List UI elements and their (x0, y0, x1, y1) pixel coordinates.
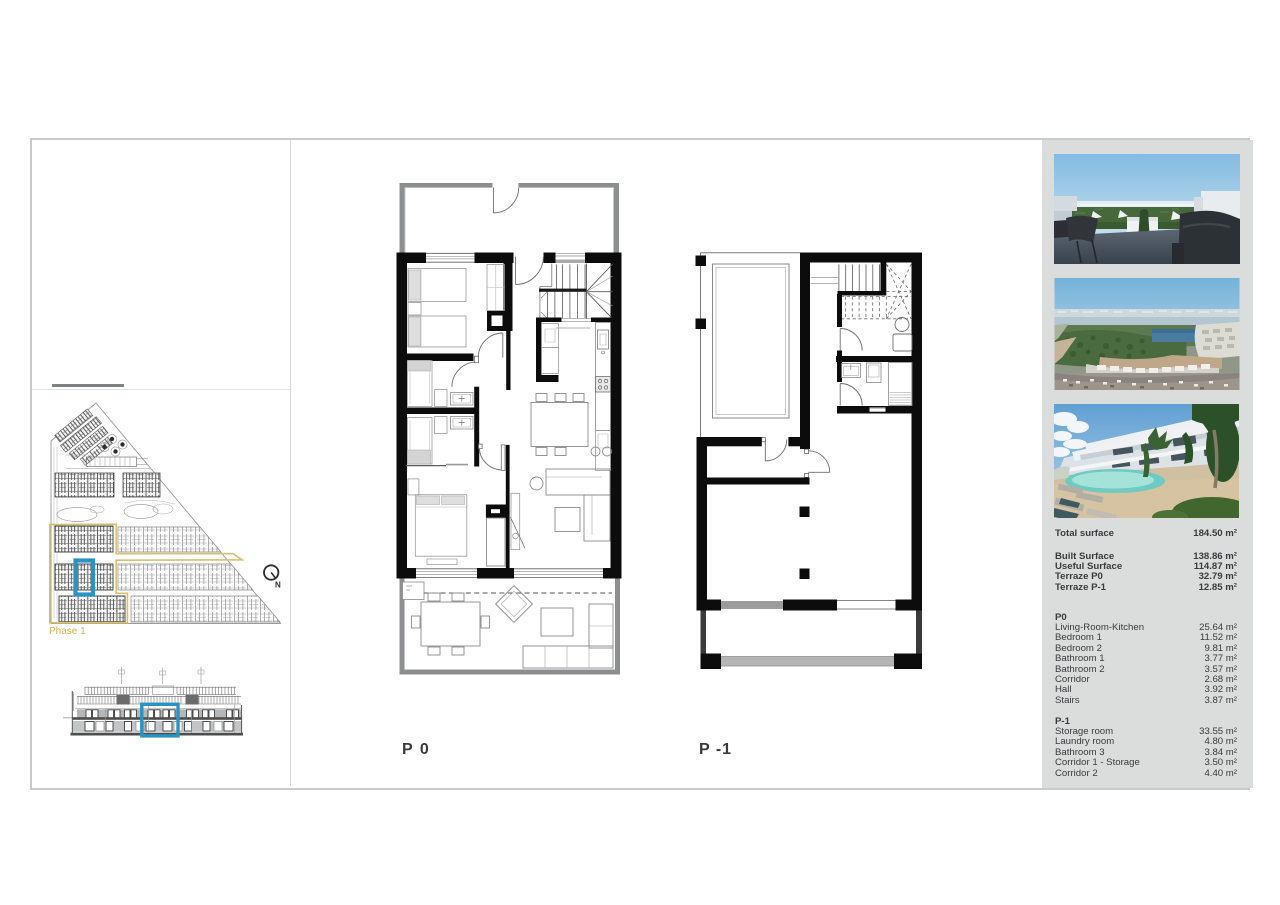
svg-text:Phase 1: Phase 1 (49, 626, 86, 637)
svg-text:N: N (275, 581, 281, 590)
